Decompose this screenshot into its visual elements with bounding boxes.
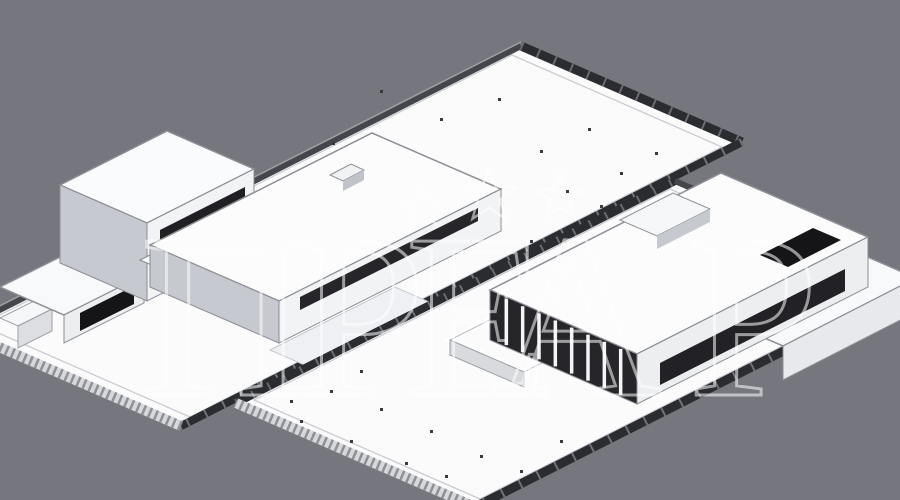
watermark-letter: Р xyxy=(688,186,819,446)
tree-dot xyxy=(480,455,483,458)
background-tan-column xyxy=(135,358,310,500)
tree-dot xyxy=(620,172,623,175)
watermark-letter: А xyxy=(492,186,662,446)
tree-dot xyxy=(520,470,523,473)
tree-dot xyxy=(380,90,383,93)
presentation-slide: П Р Е А Р Общий вид на передний двор Общ… xyxy=(0,0,900,500)
tree-dot xyxy=(445,475,448,478)
tree-dot xyxy=(498,98,501,101)
tree-dot xyxy=(405,462,408,465)
tree-dot xyxy=(332,142,335,145)
tree-dot xyxy=(588,128,591,131)
tree-dot xyxy=(440,118,443,121)
tree-dot xyxy=(540,150,543,153)
tree-dot xyxy=(655,152,658,155)
